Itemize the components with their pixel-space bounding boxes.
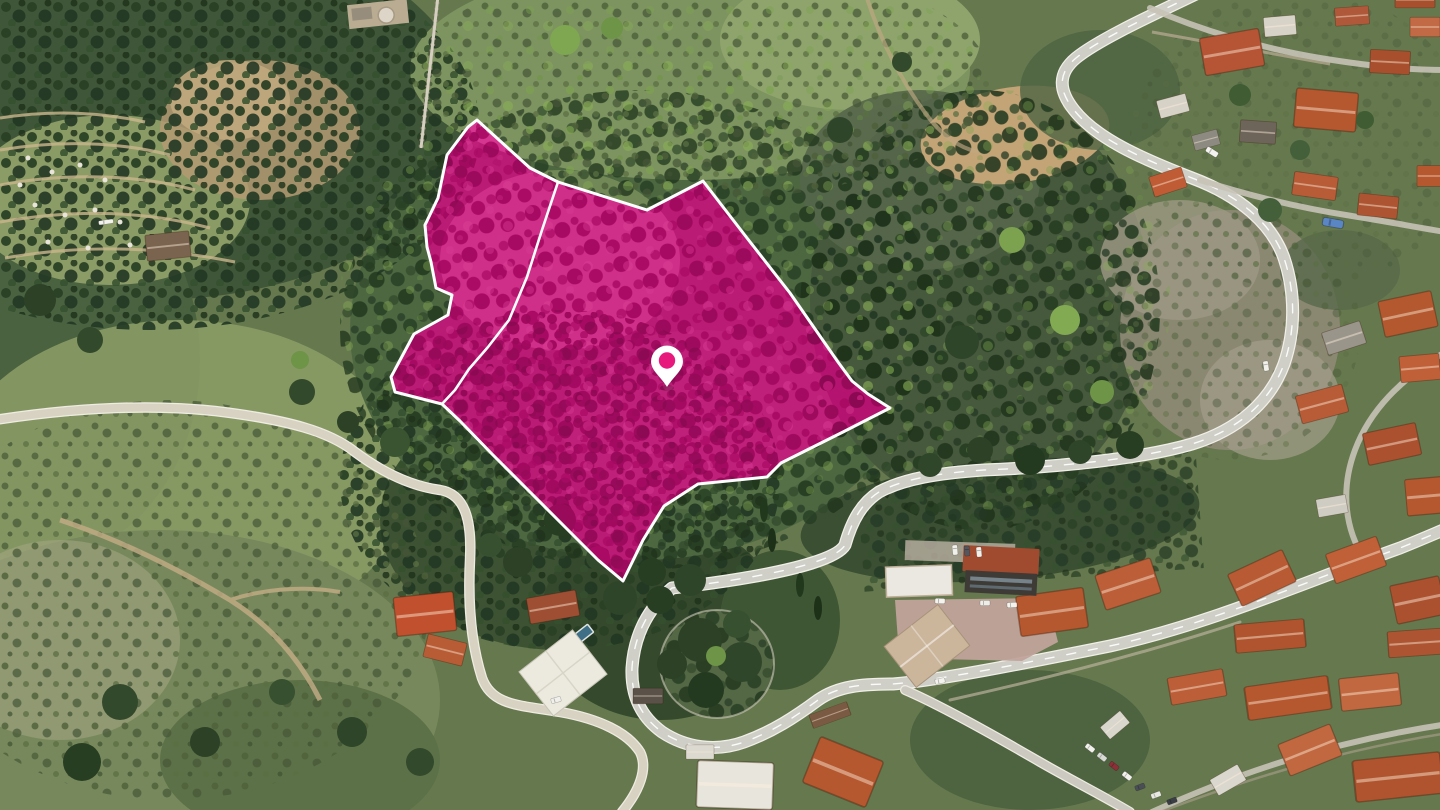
pin-dot [659,352,675,368]
canopy-building [885,565,952,597]
aerial-photo [0,0,1440,810]
aerial-map-canvas [0,0,1440,810]
storefront-building [962,545,1039,596]
